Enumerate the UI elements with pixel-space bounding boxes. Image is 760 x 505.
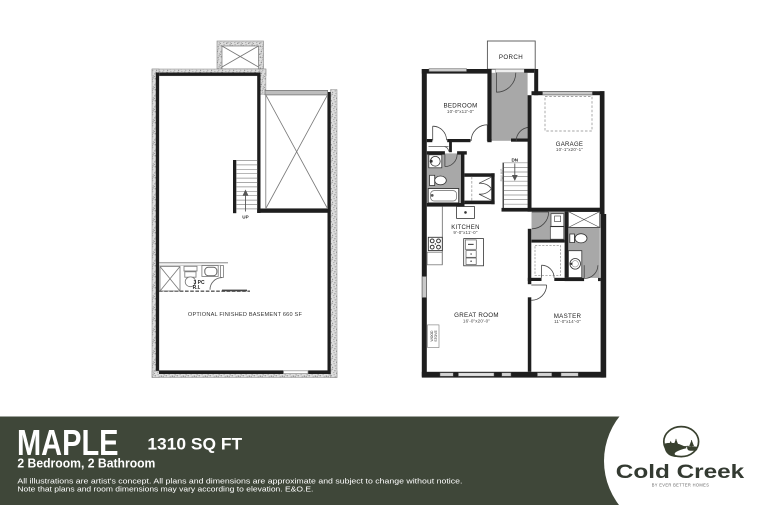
svg-text:16'-0"x20'-0": 16'-0"x20'-0": [463, 319, 490, 324]
svg-text:PORCH: PORCH: [499, 54, 523, 61]
svg-text:10'-1"x20'-1": 10'-1"x20'-1": [556, 147, 583, 152]
svg-text:RAILING: RAILING: [500, 168, 504, 181]
svg-text:Note that plans and room dimen: Note that plans and room dimensions may …: [17, 484, 313, 493]
svg-text:R.I.: R.I.: [193, 285, 201, 291]
svg-text:DN: DN: [511, 157, 518, 162]
svg-text:BY EVER BETTER HOMES: BY EVER BETTER HOMES: [652, 483, 710, 488]
svg-text:1310 SQ FT: 1310 SQ FT: [147, 435, 242, 454]
svg-text:9'-0"x11'-0": 9'-0"x11'-0": [453, 230, 477, 235]
svg-text:10'-0"x12'-0": 10'-0"x12'-0": [447, 109, 474, 114]
svg-text:2 Bedroom, 2 Bathroom: 2 Bedroom, 2 Bathroom: [17, 456, 155, 471]
svg-text:UP: UP: [242, 215, 248, 220]
svg-text:STOVE: STOVE: [434, 330, 438, 342]
svg-text:Cold Creek: Cold Creek: [616, 461, 745, 483]
svg-text:11'-0"x14'-0": 11'-0"x14'-0": [554, 319, 581, 324]
svg-text:OPTIONAL FINISHED BASEMENT 660: OPTIONAL FINISHED BASEMENT 660 SF: [188, 312, 303, 318]
